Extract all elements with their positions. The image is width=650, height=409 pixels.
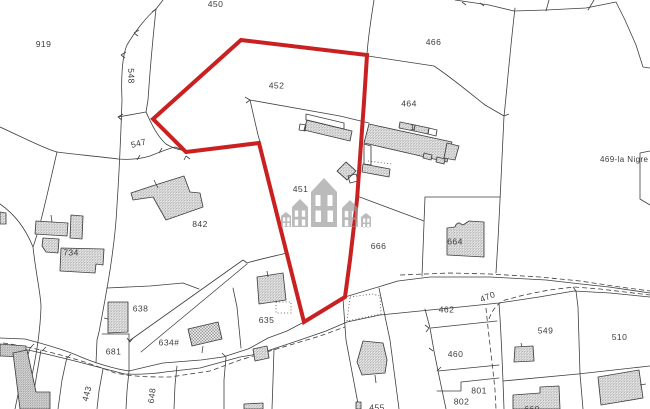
svg-text:466: 466 [426, 37, 442, 47]
svg-text:660: 660 [524, 404, 540, 409]
svg-text:919: 919 [36, 39, 52, 49]
svg-text:664: 664 [447, 237, 463, 247]
svg-text:681: 681 [106, 347, 122, 357]
svg-text:734: 734 [63, 248, 79, 258]
svg-text:464: 464 [401, 99, 417, 109]
svg-text:451: 451 [293, 184, 309, 194]
svg-text:510: 510 [612, 332, 628, 342]
svg-text:638: 638 [133, 304, 149, 314]
svg-text:635: 635 [259, 315, 275, 325]
svg-text:666: 666 [371, 241, 387, 251]
svg-text:450: 450 [208, 0, 224, 9]
svg-text:634#: 634# [159, 338, 180, 348]
svg-text:460: 460 [448, 349, 464, 359]
svg-text:469-la Nigre: 469-la Nigre [600, 155, 649, 164]
svg-text:455: 455 [369, 403, 385, 409]
svg-text:548: 548 [126, 68, 136, 84]
svg-text:801: 801 [471, 386, 487, 396]
svg-text:842: 842 [192, 219, 208, 229]
svg-text:549: 549 [538, 326, 554, 336]
svg-text:452: 452 [269, 81, 285, 91]
svg-text:802: 802 [454, 397, 470, 407]
svg-text:1: 1 [410, 123, 415, 132]
svg-text:462: 462 [439, 305, 455, 315]
svg-text:648: 648 [146, 387, 158, 404]
